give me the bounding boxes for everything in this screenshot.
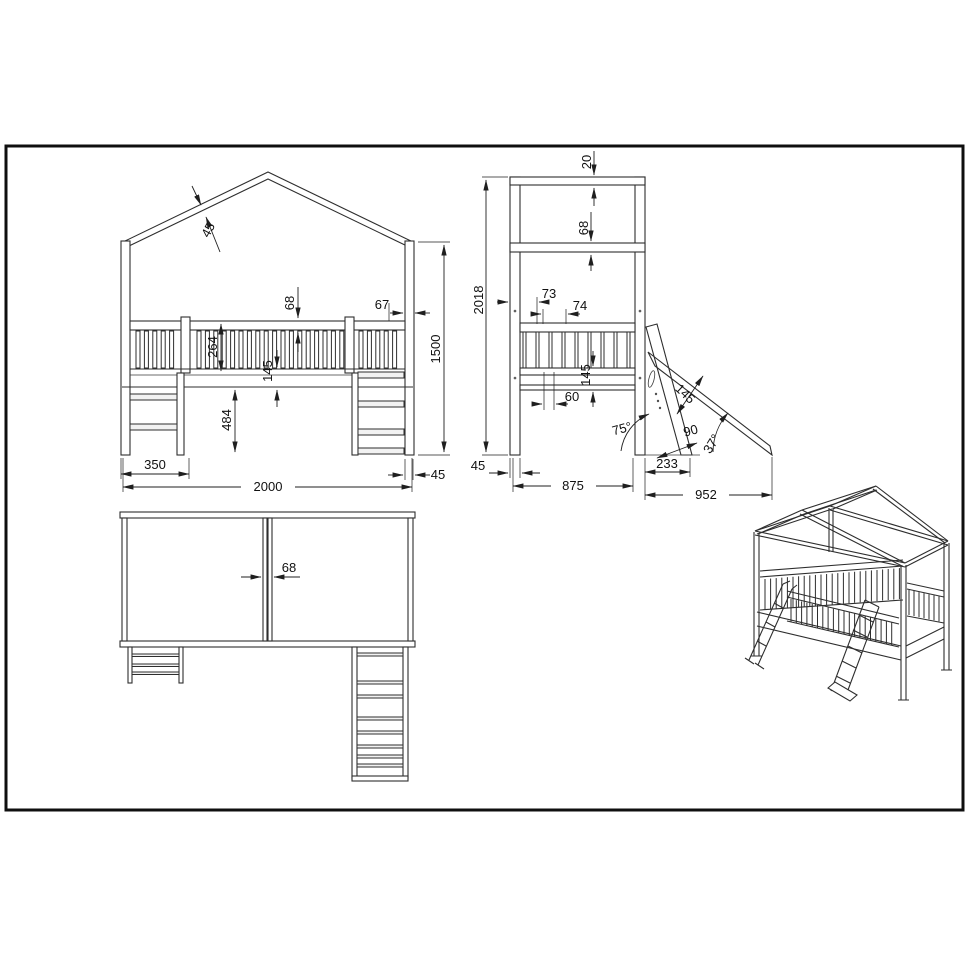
side-dim-frame-height: 145 <box>578 364 593 386</box>
top-center-beam-a <box>263 518 267 641</box>
front-dim-frame-height: 145 <box>260 360 275 382</box>
side-eave-beam <box>510 243 645 252</box>
drawing-page: 45 68 67 264 145 484 350 2000 45 1500 <box>0 0 970 971</box>
front-dim-eave-height: 1500 <box>428 335 443 364</box>
top-right-rail <box>408 518 413 641</box>
side-dim-slide-reach: 952 <box>695 487 717 502</box>
side-dim-ladder-foot-offset: 233 <box>656 456 678 471</box>
front-right-post <box>405 241 414 455</box>
front-left-post <box>121 241 130 455</box>
side-right-post <box>635 177 645 455</box>
side-left-post <box>510 177 520 455</box>
technical-drawing: 45 68 67 264 145 484 350 2000 45 1500 <box>0 0 970 971</box>
front-dim-rail-beam-height: 68 <box>282 296 297 310</box>
side-dim-total-height: 2018 <box>471 286 486 315</box>
front-right-ladder-rail <box>352 373 358 455</box>
front-left-ladder-rail <box>177 373 184 455</box>
front-dim-railing-height: 264 <box>205 336 220 358</box>
front-dim-under-clearance: 484 <box>219 409 234 431</box>
side-dim-post-width: 45 <box>471 458 485 473</box>
side-top-rail <box>520 323 635 332</box>
front-gap-post-left <box>181 317 190 373</box>
top-foot-band <box>120 641 415 647</box>
side-dim-slat-gap: 60 <box>565 389 579 404</box>
top-dim-center-beam-width: 68 <box>282 560 296 575</box>
top-left-rail <box>122 518 127 641</box>
front-top-rail <box>130 321 405 330</box>
side-dim-slat-pitch: 74 <box>573 298 587 313</box>
top-head-band <box>120 512 415 518</box>
front-dim-ladder-width: 350 <box>144 457 166 472</box>
side-dim-eave-beam: 68 <box>576 221 591 235</box>
front-dim-bed-length: 2000 <box>254 479 283 494</box>
side-dim-ridge-beam: 20 <box>579 155 594 169</box>
drawing-border <box>6 146 963 810</box>
front-dim-post-width: 45 <box>431 467 445 482</box>
side-dim-bed-depth: 875 <box>562 478 584 493</box>
side-dim-post-offset: 73 <box>542 286 556 301</box>
front-dim-rail-end-gap: 67 <box>375 297 389 312</box>
front-gap-post-right <box>345 317 354 373</box>
side-slats <box>523 332 630 368</box>
side-top-beam <box>510 177 645 185</box>
top-center-beam-b <box>268 518 272 641</box>
